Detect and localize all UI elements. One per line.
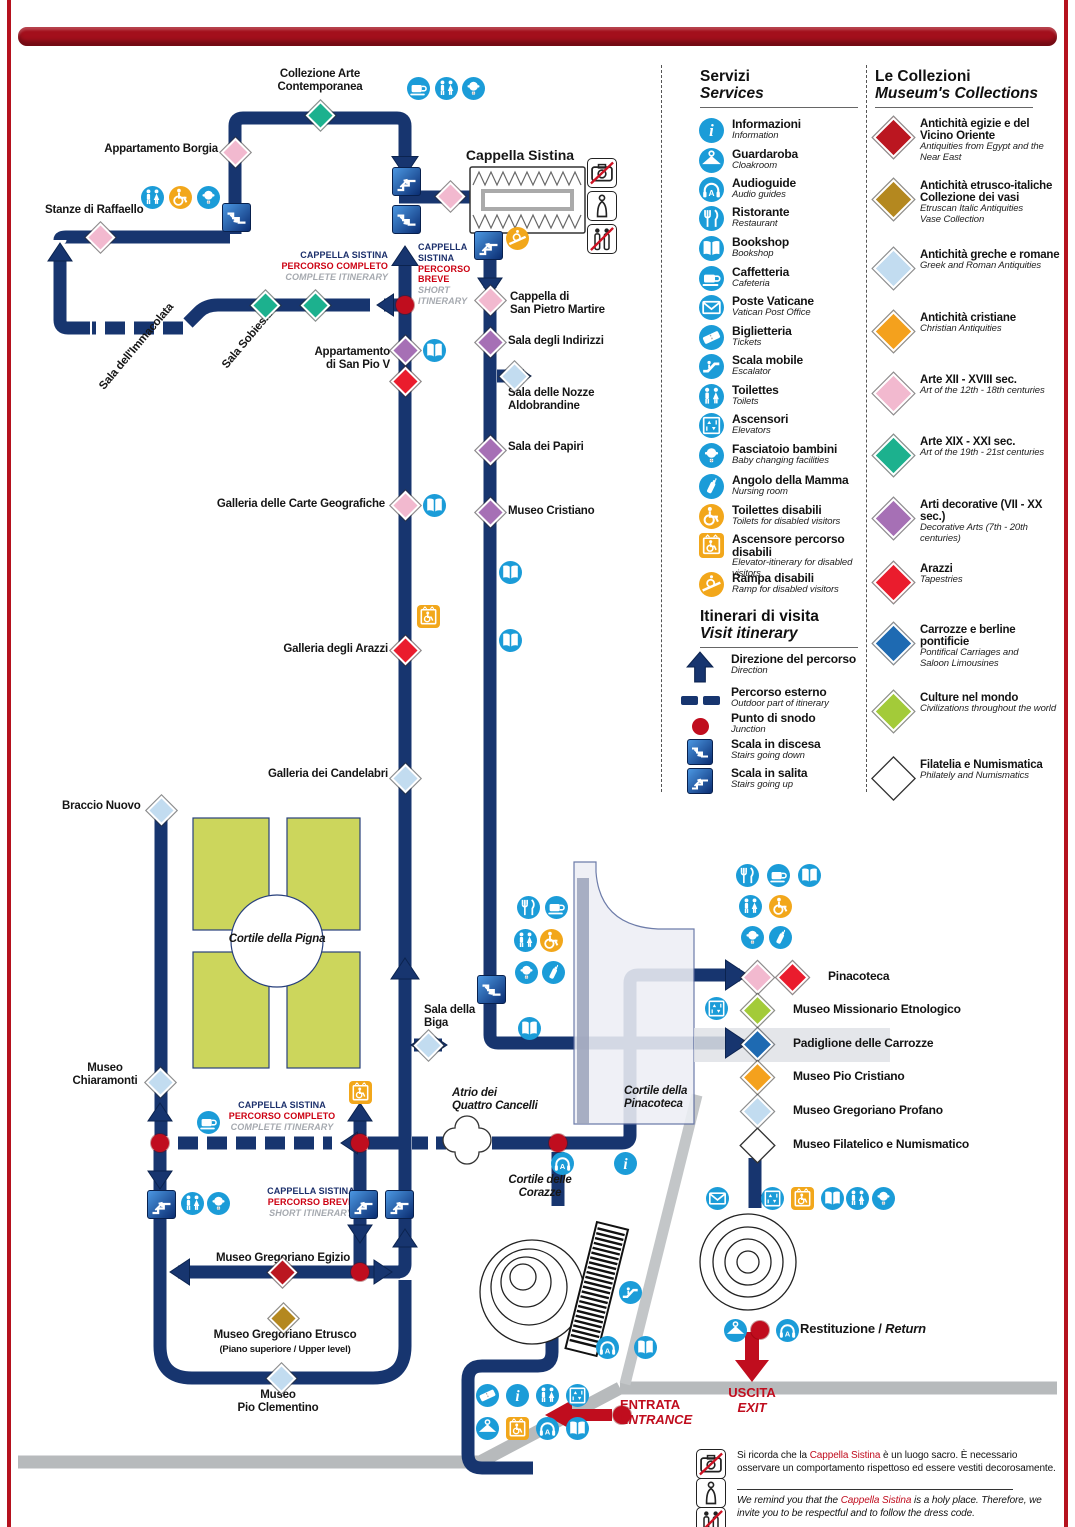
toilettes-disabili-icon (699, 504, 724, 529)
collection-diamond-arazzi (873, 562, 914, 603)
legend-collection-cristiane: Antichità cristianeChristian Antiquities (874, 312, 1060, 350)
poste-icon (706, 1187, 729, 1210)
legend-label-en: Junction (731, 725, 816, 735)
legend-collection-carrozze: Carrozze e berline pontificiePontifical … (874, 624, 1060, 669)
legend-label-en: Information (732, 131, 801, 141)
atrio-quattro-cancelli-label: Atrio deiQuattro Cancelli (452, 1087, 538, 1113)
museum-list-label: Museo Gregoriano Profano (793, 1103, 943, 1117)
legend-label-it: Arti decorative (VII - XX sec.) (920, 499, 1060, 523)
bookshop-icon (423, 494, 446, 517)
junction-dot (751, 1321, 769, 1339)
legend-collection-arte12: Arte XII - XVIII sec.Art of the 12th - 1… (874, 374, 1060, 412)
toilettes-icon (514, 929, 537, 952)
diamond-swatch (874, 436, 912, 474)
legend-service-bookshop: BookshopBookshop (699, 236, 867, 261)
legend-label-en: Nursing room (732, 487, 848, 497)
top-red-bar (18, 27, 1057, 46)
entrance-spiral-ramp (480, 1240, 584, 1344)
legend-collection-filatelia: Filatelia e NumismaticaPhilately and Num… (874, 759, 1060, 797)
ascensore-disabili-icon (349, 1081, 372, 1104)
toilettes-icon (141, 186, 164, 209)
legend-label-en: Etruscan Italic Antiquities (920, 204, 1052, 214)
stairs-down-icon (392, 205, 421, 234)
legend-label-it: Scala mobile (732, 354, 803, 367)
legend-collection-egizie: Antichità egizie e delVicino OrienteAnti… (874, 118, 1060, 163)
stairs-up-icon (392, 167, 421, 196)
fasciatoio-icon (515, 961, 538, 984)
legend-label-en: Greek and Roman Antiquities (920, 261, 1059, 271)
legend-label-it: Ascensori (732, 413, 788, 426)
legend-service-poste: Poste VaticaneVatican Post Office (699, 295, 867, 320)
fasciatoio-icon (462, 77, 485, 100)
museum-list-label: Pinacoteca (828, 969, 889, 983)
left-red-edge (7, 0, 11, 1527)
legend-label-en: Tickets (732, 338, 792, 348)
junction-dot (351, 1134, 369, 1152)
svg-text:A: A (544, 1427, 550, 1436)
legend-label-it: Scala in discesa (731, 738, 821, 751)
collection-diamond-decorative (873, 498, 914, 539)
diamond-swatch (874, 312, 912, 350)
cs-breve-top-label: CAPPELLASISTINAPERCORSOBREVESHORTITINERA… (418, 242, 470, 307)
galleria-degli-arazzi-label: Galleria degli Arazzi (283, 643, 388, 656)
collezione-arte-contemporanea-label: Collezione ArteContemporanea (278, 68, 363, 94)
audioguide-icon: A (551, 1152, 574, 1175)
informazioni-icon: i (506, 1384, 529, 1407)
diamond-swatch (874, 692, 912, 730)
appartamento-borgia-label: Appartamento Borgia (104, 143, 218, 156)
legend-label-it: Informazioni (732, 118, 801, 131)
museum-list-label: Museo Pio Cristiano (793, 1069, 905, 1083)
legend-label-en: Baby changing facilities (732, 456, 837, 466)
stairs-up-icon (385, 1190, 414, 1219)
toilettes-disabili-icon (540, 929, 563, 952)
audioguide-icon: A (699, 177, 724, 202)
toilettes-icon (181, 1192, 204, 1215)
legend-label-en: Tapestries (920, 575, 962, 585)
legend-service-biglietteria: BiglietteriaTickets (699, 325, 867, 350)
bookshop-icon (699, 236, 724, 261)
legend-label-en: Cafeteria (732, 279, 789, 289)
stairs-down-icon (677, 738, 723, 766)
legend-label-en: Toilets for disabled visitors (732, 517, 840, 527)
toilettes-disabili-icon (169, 186, 192, 209)
sistine-note-it: Si ricorda che la Cappella Sistina è un … (737, 1449, 1059, 1475)
angolo-mamma-icon (769, 926, 792, 949)
ascensori-icon (566, 1384, 589, 1407)
legend-label-it: Percorso esterno (731, 686, 829, 699)
legend-label-en: Vatican Post Office (732, 308, 814, 318)
legend-service-informazioni: iInformazioniInformation (699, 118, 867, 143)
galleria-dei-candelabri-label: Galleria dei Candelabri (268, 768, 388, 781)
collection-diamond-egizie (873, 117, 914, 158)
legend-collection-arte19: Arte XIX - XXI sec.Art of the 19th - 21s… (874, 436, 1060, 474)
informazioni-icon: i (699, 118, 724, 143)
diamond-swatch (874, 624, 912, 662)
collections-legend-title: Le Collezioni Museum's Collections (875, 68, 1038, 108)
sala-degli-indirizzi-label: Sala degli Indirizzi (508, 335, 604, 348)
collection-diamond-culture (873, 691, 914, 732)
stairs-down-icon (222, 203, 251, 232)
uscita-label: USCITAEXIT (728, 1386, 775, 1416)
fasciatoio-icon (741, 926, 764, 949)
cortile-della-pigna-label: Cortile della Pigna (229, 933, 326, 946)
museum-list-label: Museo Filatelico e Numismatico (793, 1137, 969, 1151)
legend-label-it: Scala in salita (731, 767, 807, 780)
ascensori-icon (699, 413, 724, 438)
rampa-icon (506, 227, 529, 250)
collection-diamond-arte12 (873, 373, 914, 414)
svg-text:A: A (784, 1329, 790, 1338)
legend-collection-culture: Culture nel mondoCivilizations throughou… (874, 692, 1060, 730)
stanze-di-raffaello-label: Stanze di Raffaello (45, 204, 143, 217)
legend-service-ascensori: AscensoriElevators (699, 413, 867, 438)
stairs-up-icon (147, 1190, 176, 1219)
stairs-up-icon (677, 767, 723, 795)
pinacoteca-building (574, 862, 890, 1124)
sistine-chapel-plan (470, 167, 585, 233)
caffetteria-icon (767, 864, 790, 887)
no-photo-icon (696, 1449, 726, 1479)
legend-label-it: Toilettes disabili (732, 504, 840, 517)
svg-text:A: A (708, 188, 714, 198)
diamond-swatch (874, 249, 912, 287)
bramante-staircase (700, 1214, 796, 1310)
legend-service-angolo-mamma: Angolo della MammaNursing room (699, 474, 867, 499)
legend-label-en: Antiquities from Egypt and the Near East (920, 142, 1060, 163)
museum-list-label: Museo Missionario Etnologico (793, 1002, 961, 1016)
svg-text:A: A (604, 1346, 610, 1355)
junction-dot (396, 296, 414, 314)
fasciatoio-icon (872, 1187, 895, 1210)
legend-collection-decorative: Arti decorative (VII - XX sec.)Decorativ… (874, 499, 1060, 544)
panel-separator-left (661, 65, 662, 792)
junction-dot (151, 1134, 169, 1152)
cortile-della-pinacoteca-label: Cortile dellaPinacoteca (624, 1085, 687, 1111)
angolo-mamma-icon (542, 961, 565, 984)
legend-label-en: Ramp for disabled visitors (732, 585, 839, 595)
legend-label-en: Audio guides (732, 190, 796, 200)
legend-label-en: Restaurant (732, 219, 789, 229)
angolo-mamma-icon (699, 474, 724, 499)
museo-cristiano-label: Museo Cristiano (508, 505, 594, 518)
galleria-carte-geografiche-label: Galleria delle Carte Geografiche (217, 498, 385, 511)
restituzione-label: Restituzione / Return (800, 1322, 926, 1337)
diamond-swatch (874, 374, 912, 412)
braccio-nuovo-label: Braccio Nuovo (62, 800, 141, 813)
appartamento-di-san-pio-v-label: Appartamentodi San Pio V (314, 346, 390, 372)
scala-mobile-icon (699, 354, 724, 379)
entrata-label: ENTRATAENTRANCE (620, 1398, 692, 1428)
legend-service-fasciatoio: Fasciatoio bambiniBaby changing faciliti… (699, 443, 867, 468)
dress-code-icon (587, 191, 617, 221)
legend-label-it: Fasciatoio bambini (732, 443, 837, 456)
fasciatoio-icon (699, 443, 724, 468)
audioguide-icon: A (596, 1336, 619, 1359)
ristorante-icon (699, 206, 724, 231)
legend-label-it: Angolo della Mamma (732, 474, 848, 487)
diamond-swatch (874, 759, 912, 797)
guardaroba-icon (476, 1417, 499, 1440)
bookshop-icon (518, 1017, 541, 1040)
rampa-icon (699, 572, 724, 597)
junction-dot (351, 1263, 369, 1281)
legend-label-en: Stairs going down (731, 751, 821, 761)
legend-label-en: Christian Antiquities (920, 324, 1016, 334)
caffetteria-icon (545, 896, 568, 919)
legend-itinerary-dot: Punto di snodoJunction (677, 712, 862, 740)
legend-label-en: Decorative Arts (7th - 20th centuries) (920, 523, 1060, 544)
dress-code-icon (696, 1478, 726, 1508)
ascensore-disabili-icon (506, 1417, 529, 1440)
diamond-swatch (874, 118, 912, 156)
legend-service-caffetteria: CaffetteriaCafeteria (699, 266, 867, 291)
legend-itinerary-dash: Percorso esternoOutdoor part of itinerar… (677, 686, 862, 714)
legend-label-en: Direction (731, 666, 856, 676)
vatican-museums-map: Servizi Services Itinerari di visita Vis… (0, 0, 1075, 1527)
legend-label-en: Elevators (732, 426, 788, 436)
bookshop-icon (423, 339, 446, 362)
toilettes-icon (739, 895, 762, 918)
legend-collection-arazzi: ArazziTapestries (874, 563, 1060, 601)
junction-dot (549, 1134, 567, 1152)
legend-service-rampa: Rampa disabiliRamp for disabled visitors (699, 572, 867, 597)
svg-text:i: i (515, 1387, 520, 1404)
note-divider (737, 1489, 1013, 1490)
audioguide-icon: A (776, 1319, 799, 1342)
bookshop-icon (821, 1187, 844, 1210)
legend-label-en: Bookshop (732, 249, 789, 259)
legend-label-en: Cloakroom (732, 161, 798, 171)
biglietteria-icon (699, 325, 724, 350)
fasciatoio-icon (207, 1192, 230, 1215)
right-red-edge (1064, 0, 1068, 1527)
svg-text:A: A (559, 1162, 565, 1171)
legend-label-en: Escalator (732, 367, 803, 377)
legend-label-it: Antichità etrusco-italiche (920, 180, 1052, 192)
svg-text:i: i (709, 121, 714, 140)
atrio-quattro-cancelli-shape (443, 1116, 491, 1164)
svg-text:i: i (623, 1155, 628, 1172)
legend-label-en: Civilizations throughout the world (920, 704, 1056, 714)
no-sleeveless-icon (696, 1507, 726, 1527)
ristorante-icon (736, 864, 759, 887)
outdoor-path-icon (677, 686, 723, 714)
legend-collection-etrusco: Antichità etrusco-italicheCollezione dei… (874, 180, 1060, 225)
legend-label-it: Toilettes (732, 384, 779, 397)
informazioni-icon: i (614, 1152, 637, 1175)
legend-label-it: Antichità egizie e del (920, 118, 1060, 130)
legend-label-it: Carrozze e berline pontificie (920, 624, 1060, 648)
stairs-up-icon (349, 1190, 378, 1219)
ascensori-icon (761, 1187, 784, 1210)
legend-itinerary-arrow: Direzione del percorsoDirection (677, 653, 862, 681)
toilettes-icon (846, 1187, 869, 1210)
legend-service-audioguide: AAudioguideAudio guides (699, 177, 867, 202)
legend-itinerary-sup: Scala in salitaStairs going up (677, 767, 862, 795)
legend-label-it: Caffetteria (732, 266, 789, 279)
legend-label-it: Audioguide (732, 177, 796, 190)
audioguide-icon: A (536, 1417, 559, 1440)
legend-service-toilettes-disabili: Toilettes disabiliToilets for disabled v… (699, 504, 867, 529)
no-photo-icon (587, 158, 617, 188)
legend-label-it: Direzione del percorso (731, 653, 856, 666)
legend-itinerary-sdown: Scala in discesaStairs going down (677, 738, 862, 766)
cappella-san-pietro-martire-label: Cappella diSan Pietro Martire (510, 291, 605, 317)
diamond-swatch (874, 180, 912, 218)
bookshop-icon (499, 629, 522, 652)
legend-label-en: Outdoor part of itinerary (731, 699, 829, 709)
legend-label-it: Punto di snodo (731, 712, 816, 725)
sistine-note-en: We remind you that the Cappella Sistina … (737, 1494, 1059, 1520)
services-legend-title: Servizi Services (700, 68, 858, 108)
legend-label-en: Art of the 12th - 18th centuries (920, 386, 1045, 396)
legend-service-ristorante: RistoranteRestaurant (699, 206, 867, 231)
caffetteria-icon (197, 1111, 220, 1134)
cs-completo-bottom-label: CAPPELLA SISTINAPERCORSO COMPLETOCOMPLET… (229, 1100, 336, 1132)
bookshop-icon (634, 1336, 657, 1359)
cs-completo-top-label: CAPPELLA SISTINAPERCORSO COMPLETOCOMPLET… (281, 250, 388, 282)
legend-label-en: Vase Collection (920, 215, 1052, 225)
collection-diamond-cristiane (873, 311, 914, 352)
caffetteria-icon (407, 77, 430, 100)
legend-collection-greche: Antichità greche e romaneGreek and Roman… (874, 249, 1060, 287)
guardaroba-icon (724, 1319, 747, 1342)
legend-service-guardaroba: GuardarobaCloakroom (699, 148, 867, 173)
caffetteria-icon (699, 266, 724, 291)
stairs-down-icon (477, 975, 506, 1004)
cortile-delle-corazze-label: Cortile delleCorazze (508, 1174, 571, 1200)
legend-label-en: Art of the 19th - 21st centuries (920, 448, 1044, 458)
poste-icon (699, 295, 724, 320)
collection-diamond-etrusco (873, 179, 914, 220)
museo-gregoriano-etrusco-s-label: (Piano superiore / Upper level) (219, 1345, 350, 1356)
museo-chiaramonti-label: MuseoChiaramonti (73, 1062, 138, 1088)
legend-label-it: Poste Vaticane (732, 295, 814, 308)
cappella-sistina-label: Cappella Sistina (466, 148, 574, 164)
collection-diamond-filatelia (873, 758, 914, 799)
ascensore-disabili-icon (417, 605, 440, 628)
toilettes-icon (536, 1384, 559, 1407)
direction-arrow-icon (677, 653, 723, 681)
toilettes-disabili-icon (769, 895, 792, 918)
ascensore-disabili-icon (699, 533, 724, 558)
toilettes-icon (435, 77, 458, 100)
museum-list-label: Padiglione delle Carrozze (793, 1036, 933, 1050)
legend-label-it: Rampa disabili (732, 572, 839, 585)
legend-label-it: Ristorante (732, 206, 789, 219)
legend-label-en: Toilets (732, 397, 779, 407)
stairs-up-icon (474, 231, 503, 260)
ristorante-icon (517, 896, 540, 919)
itinerary-legend-title: Itinerari di visita Visit itinerary (700, 608, 858, 648)
no-sleeveless-icon (587, 224, 617, 254)
ascensori-icon (705, 997, 728, 1020)
guardaroba-icon (699, 148, 724, 173)
legend-label-en: Pontifical Carriages and (920, 648, 1060, 658)
toilettes-icon (699, 384, 724, 409)
legend-service-toilettes: ToilettesToilets (699, 384, 867, 409)
biglietteria-icon (476, 1384, 499, 1407)
museo-pio-clementino-label: MuseoPio Clementino (238, 1389, 319, 1415)
legend-label-en: Stairs going up (731, 780, 807, 790)
collection-diamond-greche (873, 248, 914, 289)
junction-dot-icon (677, 712, 723, 740)
bookshop-icon (499, 561, 522, 584)
legend-label-it: Biglietteria (732, 325, 792, 338)
collection-diamond-arte19 (873, 435, 914, 476)
legend-label-it: Ascensore percorso disabili (732, 533, 867, 558)
legend-service-scala-mobile: Scala mobileEscalator (699, 354, 867, 379)
scala-mobile-icon (619, 1281, 642, 1304)
bookshop-icon (566, 1417, 589, 1440)
legend-label-en: Saloon Limousines (920, 659, 1060, 669)
legend-label-en: Philately and Numismatics (920, 771, 1043, 781)
sala-della-biga-label: Sala dellaBiga (424, 1004, 475, 1030)
fasciatoio-icon (197, 186, 220, 209)
diamond-swatch (874, 563, 912, 601)
collection-diamond-carrozze (873, 623, 914, 664)
legend-label-it: Bookshop (732, 236, 789, 249)
sala-dei-papiri-label: Sala dei Papiri (508, 441, 584, 454)
bookshop-icon (798, 864, 821, 887)
cs-breve-bottom-label: CAPPELLA SISTINAPERCORSO BREVESHORT ITIN… (267, 1186, 355, 1218)
sala-delle-nozze-aldobrandine-label: Sala delle NozzeAldobrandine (508, 387, 594, 413)
ascensore-disabili-icon (791, 1187, 814, 1210)
diamond-swatch (874, 499, 912, 537)
legend-label-it: Guardaroba (732, 148, 798, 161)
